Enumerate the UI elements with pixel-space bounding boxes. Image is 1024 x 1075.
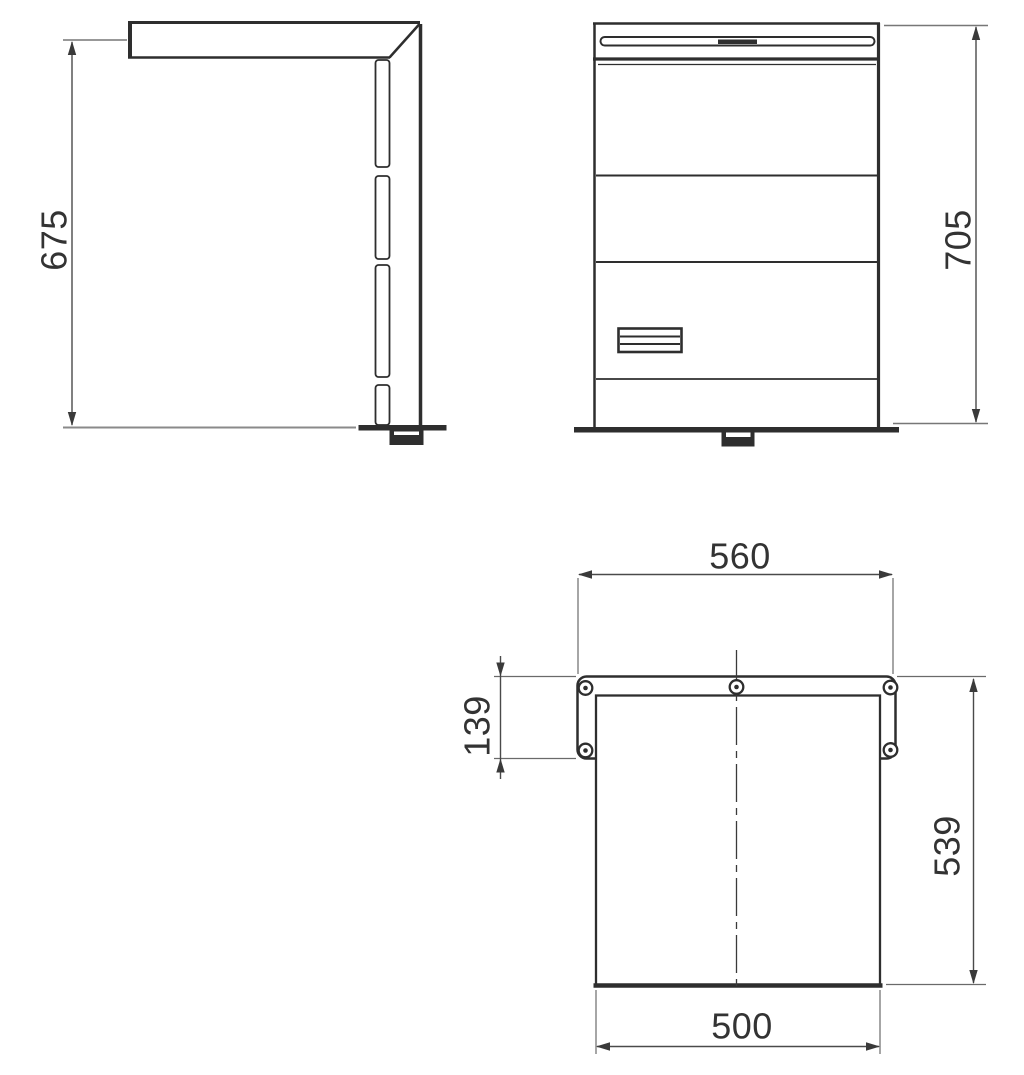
arrowhead-down [969,970,977,984]
top-worktop-panel [596,696,880,986]
top-view [578,650,898,987]
technical-drawing-canvas: 675 705 [0,0,1024,1075]
side-worktop-miter-edge [390,24,420,58]
dimension-label-front-height: 705 [938,209,979,271]
dimension-539: 539 [886,677,986,985]
dimension-label-side-height: 675 [34,209,75,271]
arrowhead-down [68,412,76,426]
technical-drawing-page: 675 705 [0,0,1024,1075]
arrowhead-down [972,409,980,423]
side-view [128,21,447,445]
arrowhead-up [972,26,980,40]
front-louver-vent [619,329,682,353]
dimension-label-plate-width: 560 [709,536,771,577]
arrowhead-left [596,1042,610,1050]
arrowhead-up [496,759,504,773]
dimension-label-top-depth: 539 [927,815,968,877]
front-view [574,23,899,447]
side-foot-notch [394,432,419,436]
side-base-plate [359,425,447,431]
front-foot-notch [726,433,751,438]
arrowhead-right [866,1042,880,1050]
arrowhead-down [496,663,504,677]
screw-hole-center [734,685,739,690]
arrowhead-up [969,678,977,692]
dimension-label-plate-depth: 139 [457,695,498,757]
side-cable-channel-segment [376,176,390,259]
side-cable-channel-segment [376,385,390,425]
dimension-500: 500 [596,990,880,1054]
dimension-705: 705 [884,26,988,424]
arrowhead-left [578,570,592,578]
arrowhead-up [68,41,76,55]
screw-hole-center [888,748,893,753]
dimension-label-top-width: 500 [711,1006,773,1047]
side-cable-channel-segment [376,60,390,167]
screw-hole-center [583,748,588,753]
side-cable-channel-segment [376,265,390,377]
dimension-675: 675 [34,40,357,428]
dimension-139: 139 [457,656,577,779]
arrowhead-right [879,570,893,578]
front-vent-slot-handle [718,40,757,45]
screw-hole-center [583,686,588,691]
dimension-560: 560 [578,536,893,675]
screw-hole-center [888,685,893,690]
front-base-plate [574,427,899,433]
